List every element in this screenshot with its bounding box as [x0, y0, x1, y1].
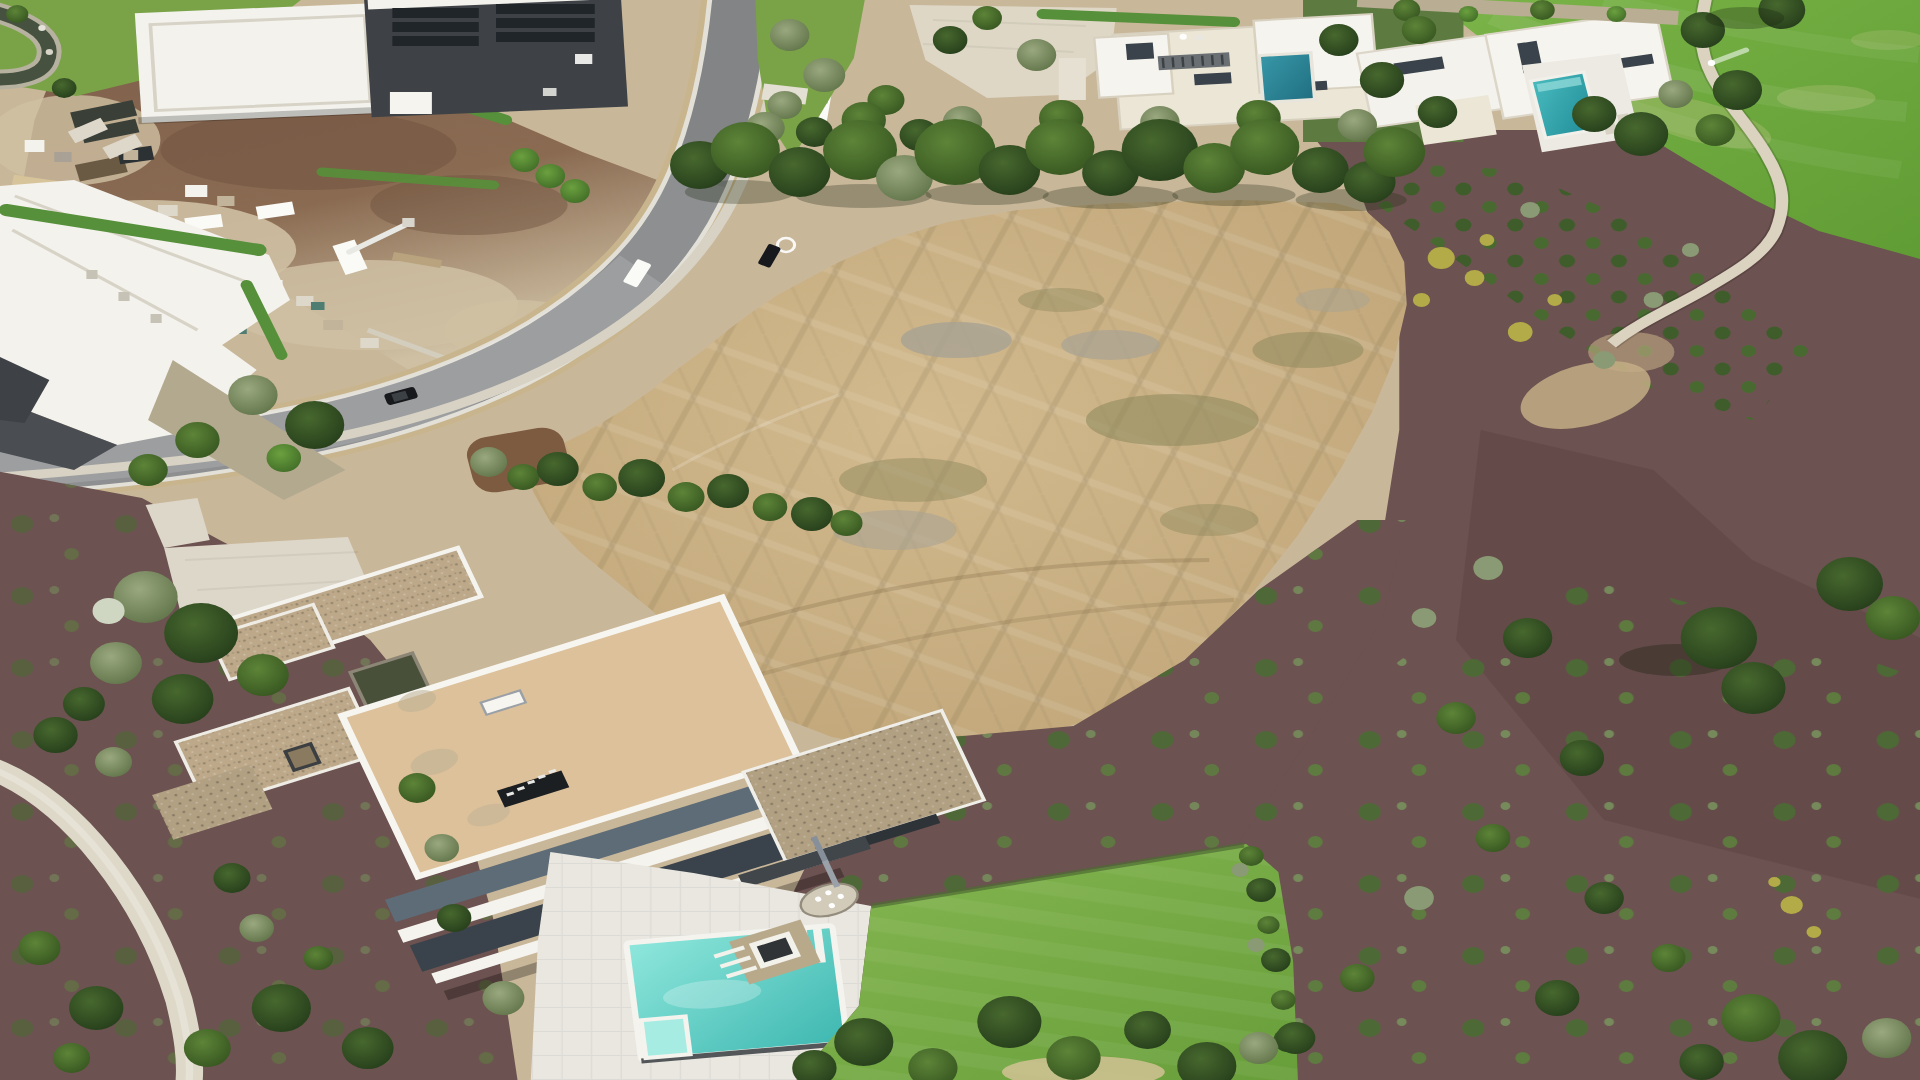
tree — [1614, 112, 1668, 156]
sage-shrub — [1593, 351, 1615, 369]
shrub — [342, 1027, 394, 1069]
shrub — [1257, 916, 1279, 934]
flowering-shrub — [93, 598, 125, 624]
olive-tree — [770, 19, 809, 51]
roof-slot — [1194, 72, 1232, 85]
shrub — [1560, 740, 1604, 776]
shrub — [53, 1043, 90, 1073]
roof-slot — [1126, 42, 1154, 59]
tree — [582, 473, 617, 501]
tree-shadow — [1172, 184, 1295, 206]
shrub — [252, 984, 311, 1032]
entry-walk — [1059, 58, 1086, 100]
tree — [668, 482, 705, 512]
spa — [641, 1016, 690, 1058]
shrub — [1584, 882, 1623, 914]
sage-shrub — [1231, 863, 1248, 877]
shrub — [304, 946, 334, 970]
dried-vegetation-patch — [1086, 394, 1259, 446]
shrub — [184, 1029, 231, 1067]
tree — [507, 464, 539, 490]
tree — [1679, 1044, 1723, 1080]
tree — [1239, 1032, 1278, 1064]
shrub — [424, 834, 459, 862]
tree — [128, 454, 167, 486]
tree — [1418, 96, 1457, 128]
shrub — [1607, 6, 1627, 22]
skylight — [151, 314, 162, 323]
tree — [228, 375, 277, 415]
sage-shrub — [1412, 608, 1437, 628]
shrub — [1459, 6, 1479, 22]
tree — [753, 493, 788, 521]
shrub — [95, 747, 132, 777]
tree — [285, 401, 344, 449]
tree — [1862, 1018, 1911, 1058]
shrub — [1651, 944, 1686, 972]
gray-soil-patch — [1296, 288, 1370, 312]
shrub — [482, 981, 524, 1015]
shrub — [239, 914, 274, 942]
shrub — [19, 931, 61, 965]
skylight — [86, 270, 97, 279]
tree — [537, 452, 579, 486]
tree — [1572, 96, 1616, 132]
pallet — [185, 185, 207, 197]
yellow-flowering-bush — [1768, 877, 1780, 887]
tree-shadow — [1705, 7, 1784, 29]
tree — [175, 422, 219, 458]
hedge-shrub — [560, 179, 590, 203]
shrub — [1436, 702, 1475, 734]
tree — [1046, 1036, 1100, 1080]
yellow-flowering-bush — [1465, 270, 1485, 286]
tree — [470, 447, 507, 477]
shrub — [1340, 964, 1375, 992]
tree — [977, 996, 1041, 1048]
tree — [152, 674, 214, 724]
shrub — [1246, 878, 1276, 902]
pallet — [323, 320, 343, 330]
tree — [1292, 147, 1349, 193]
sage-shrub — [1520, 202, 1540, 218]
tree — [791, 497, 833, 531]
tree — [707, 474, 749, 508]
yellow-flowering-bush — [1508, 322, 1533, 342]
tree — [1363, 127, 1425, 177]
shrub — [6, 5, 28, 23]
pallet — [360, 338, 379, 348]
tree — [90, 642, 142, 684]
tree — [1402, 16, 1437, 44]
dried-vegetation-patch — [1252, 332, 1363, 368]
shrub — [52, 78, 77, 98]
tree — [1124, 1011, 1171, 1049]
gray-soil-patch — [1061, 330, 1160, 360]
dried-vegetation-patch — [1160, 504, 1259, 536]
tree — [972, 6, 1002, 30]
pallet — [54, 152, 71, 162]
tree — [237, 654, 289, 696]
shrub — [1239, 846, 1264, 866]
rooftop-unit — [575, 54, 592, 64]
shrub — [1276, 1022, 1315, 1054]
shrub — [1530, 0, 1555, 20]
sage-shrub — [1644, 292, 1664, 308]
hedge-shrub — [536, 164, 566, 188]
tree — [1816, 557, 1883, 611]
pallet — [25, 140, 45, 152]
tree — [1230, 119, 1299, 175]
shrub — [399, 773, 436, 803]
pallet — [296, 296, 313, 306]
tree — [769, 147, 831, 197]
rock — [46, 49, 53, 55]
tree — [1658, 80, 1693, 108]
yellow-flowering-bush — [1806, 926, 1821, 938]
pallet — [217, 196, 234, 206]
rock — [38, 25, 45, 31]
tree — [63, 687, 105, 721]
tree — [933, 26, 968, 54]
tree — [1360, 62, 1404, 98]
tree — [1721, 662, 1785, 714]
yellow-flowering-bush — [1547, 294, 1562, 306]
tree — [1713, 70, 1762, 110]
tree — [1695, 114, 1734, 146]
roof-block — [390, 92, 432, 114]
tree — [1721, 994, 1780, 1042]
yellow-flowering-bush — [1413, 293, 1430, 307]
house-a-pool — [1259, 53, 1315, 103]
sage-shrub — [1404, 886, 1434, 910]
tree — [834, 1018, 893, 1066]
tree — [1319, 24, 1358, 56]
shrub — [267, 444, 302, 472]
shrub — [1476, 824, 1511, 852]
aerial-photo-stage — [0, 0, 1920, 1080]
yellow-flowering-bush — [1479, 234, 1494, 246]
sage-shrub — [1682, 243, 1699, 257]
skylight — [118, 292, 129, 301]
tree — [1866, 596, 1920, 640]
tree — [830, 510, 862, 536]
tree — [1681, 607, 1758, 669]
shrub — [33, 717, 77, 753]
dried-vegetation-patch — [839, 458, 987, 502]
shrub — [1535, 980, 1579, 1016]
sage-shrub — [1248, 938, 1265, 952]
tree — [618, 459, 665, 497]
tree — [164, 603, 238, 663]
shrub — [1261, 948, 1291, 972]
shrub — [1503, 618, 1552, 658]
boom-basket — [402, 218, 414, 227]
shrub — [1271, 990, 1296, 1010]
aerial-photo — [0, 0, 1920, 1080]
olive-tree — [1017, 39, 1056, 71]
rooftop-unit — [543, 88, 557, 96]
olive-tree — [803, 58, 845, 92]
shrub — [213, 863, 250, 893]
shrub — [69, 986, 123, 1030]
shrub — [437, 904, 472, 932]
yellow-flowering-bush — [1428, 247, 1455, 269]
gray-soil-patch — [901, 322, 1012, 358]
teal-bin — [311, 302, 325, 310]
sage-shrub — [1473, 556, 1503, 580]
dried-vegetation-patch — [1018, 288, 1104, 312]
yellow-flowering-bush — [1781, 896, 1803, 914]
hedge-shrub — [510, 148, 540, 172]
